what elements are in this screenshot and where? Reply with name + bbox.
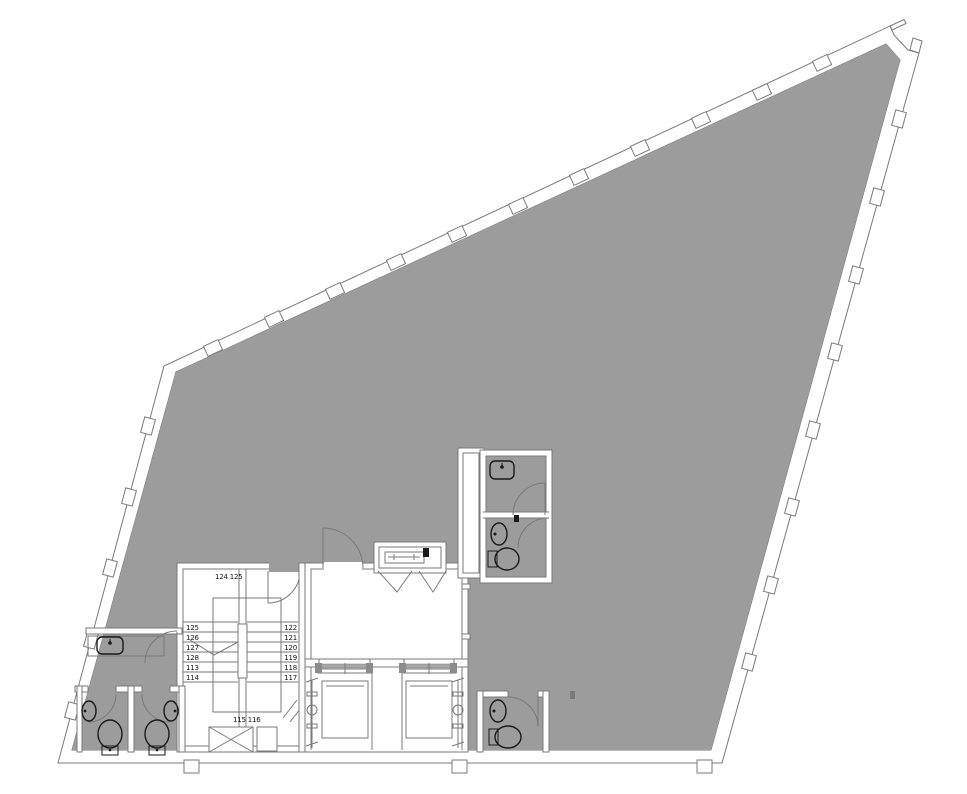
pilaster-stub (452, 760, 467, 773)
wall-end-tail-top (890, 20, 906, 31)
wall-end-tail-right (910, 38, 922, 53)
faucet-icon (174, 710, 177, 713)
wall-tab (462, 634, 470, 639)
door-jamb-mark (423, 548, 429, 557)
step-number: 113 (186, 664, 199, 672)
step-number: 125 (186, 624, 199, 632)
lobby-door-opening (324, 562, 362, 572)
faucet-icon (494, 533, 497, 536)
step-number: 127 (186, 644, 199, 652)
door-jamb-mark (514, 515, 519, 522)
step-number: 120 (284, 644, 297, 652)
stair-bottom-label: 115 116 (233, 716, 261, 724)
step-number: 118 (284, 664, 297, 672)
stair-door-opening (269, 562, 299, 572)
faucet-icon (493, 710, 496, 713)
wall-tab (462, 584, 470, 589)
step-number: 114 (186, 674, 200, 682)
door-jamb-mark (570, 691, 575, 699)
faucet-icon (84, 710, 87, 713)
utility-box (257, 727, 277, 751)
stairwell: 124 125 115 116 125 126 127 128 113 114 … (177, 562, 305, 752)
step-number: 128 (186, 654, 199, 662)
room-wall (86, 628, 182, 634)
stall-divider (128, 686, 134, 752)
step-number: 121 (284, 634, 297, 642)
step-number: 126 (186, 634, 200, 642)
floor-plan-canvas: 124 125 115 116 125 126 127 128 113 114 … (0, 0, 967, 794)
pilaster-stub (697, 760, 712, 773)
lobby-room (305, 563, 468, 752)
step-number: 119 (284, 654, 297, 662)
stair-handrail (238, 624, 247, 678)
floor-plan-drawing: 124 125 115 116 125 126 127 128 113 114 … (0, 0, 967, 794)
pilaster-stub (184, 760, 199, 773)
step-number: 122 (284, 624, 297, 632)
step-number: 117 (284, 674, 297, 682)
stair-top-label: 124 125 (215, 573, 243, 581)
